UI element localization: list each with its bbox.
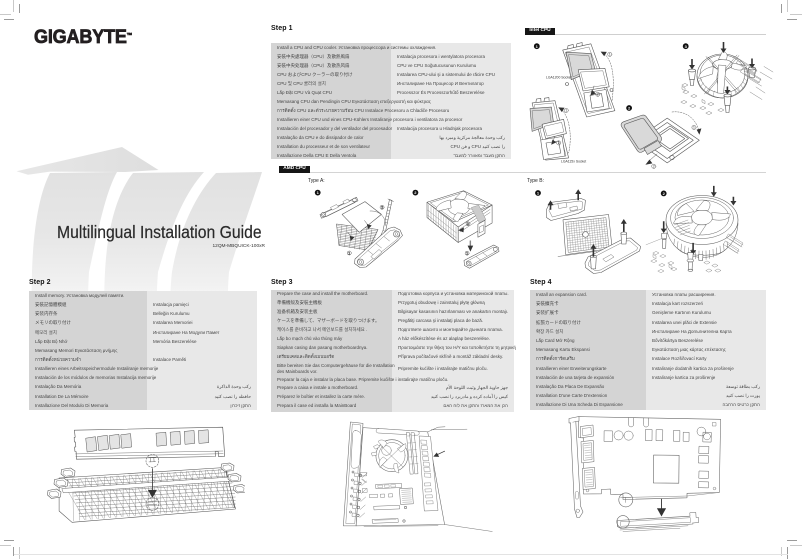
svg-text:2: 2	[558, 141, 560, 145]
svg-text:1: 1	[609, 53, 611, 57]
svg-text:LGA1200 Socket: LGA1200 Socket	[546, 76, 572, 80]
svg-text:2: 2	[597, 93, 599, 97]
svg-text:1: 1	[565, 109, 567, 113]
svg-text:1: 1	[693, 126, 695, 130]
svg-text:2: 2	[381, 206, 383, 210]
svg-text:2: 2	[653, 165, 655, 169]
svg-text:1: 1	[466, 252, 468, 256]
svg-text:1: 1	[348, 251, 350, 255]
svg-text:LGA115x Socket: LGA115x Socket	[561, 159, 586, 163]
svg-text:1: 1	[467, 222, 469, 226]
